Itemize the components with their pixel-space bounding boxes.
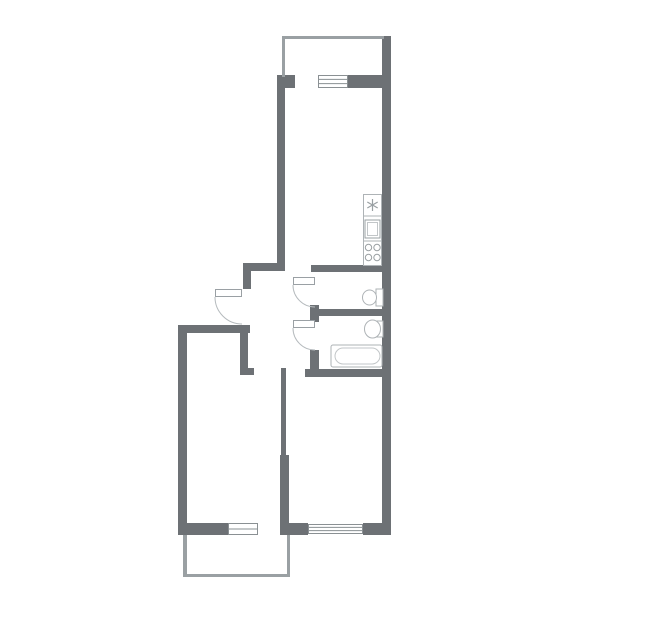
room-living-room (289, 377, 382, 523)
wc-door-swing-arc (293, 285, 315, 307)
wc-door-leaf (294, 278, 315, 285)
hallway-west-wall-foot (240, 368, 254, 375)
hallway-west-wall (240, 333, 248, 368)
living-bottom-wall-right (363, 523, 391, 535)
left-outer-wall (178, 325, 187, 535)
floor-plan-svg (0, 0, 645, 635)
wc-top-wall (311, 265, 382, 272)
kitchen-left-wall (277, 88, 285, 271)
wc-bathroom-divider-wall (310, 309, 382, 316)
toilet-tank (376, 289, 383, 306)
entry-door-leaf (216, 290, 242, 297)
bottom-balcony-left-wall (183, 535, 187, 577)
washbasin-bowl (365, 320, 381, 338)
floor-plan (0, 0, 645, 635)
living-room-window (309, 525, 363, 534)
entry-side-wall (243, 263, 251, 289)
bathroom-bottom-wall (305, 369, 382, 377)
kitchen-balcony-window (319, 76, 348, 88)
top-balcony-top-wall (282, 36, 384, 39)
bathroom-door-leaf (294, 321, 315, 328)
bottom-balcony-right-wall (287, 535, 290, 577)
top-balcony-left-wall (282, 36, 285, 77)
room-hallway (251, 271, 310, 368)
living-bottom-wall-left (280, 523, 308, 535)
bottom-balcony-bottom-wall (183, 574, 290, 577)
toilet-bowl (363, 290, 377, 305)
bedroom-top-wall (178, 325, 250, 333)
top-wall-right-segment (348, 75, 382, 88)
top-wall-left-block (277, 75, 295, 88)
bathroom-door-swing-arc (293, 328, 315, 350)
room-bedroom (187, 333, 281, 523)
entry-door-swing-arc (215, 297, 242, 324)
right-outer-wall (382, 36, 391, 535)
room-divider-wall-upper (281, 368, 286, 455)
bedroom-bottom-wall (178, 523, 228, 535)
room-balcony-top (285, 39, 382, 75)
room-balcony-bottom (187, 535, 287, 574)
